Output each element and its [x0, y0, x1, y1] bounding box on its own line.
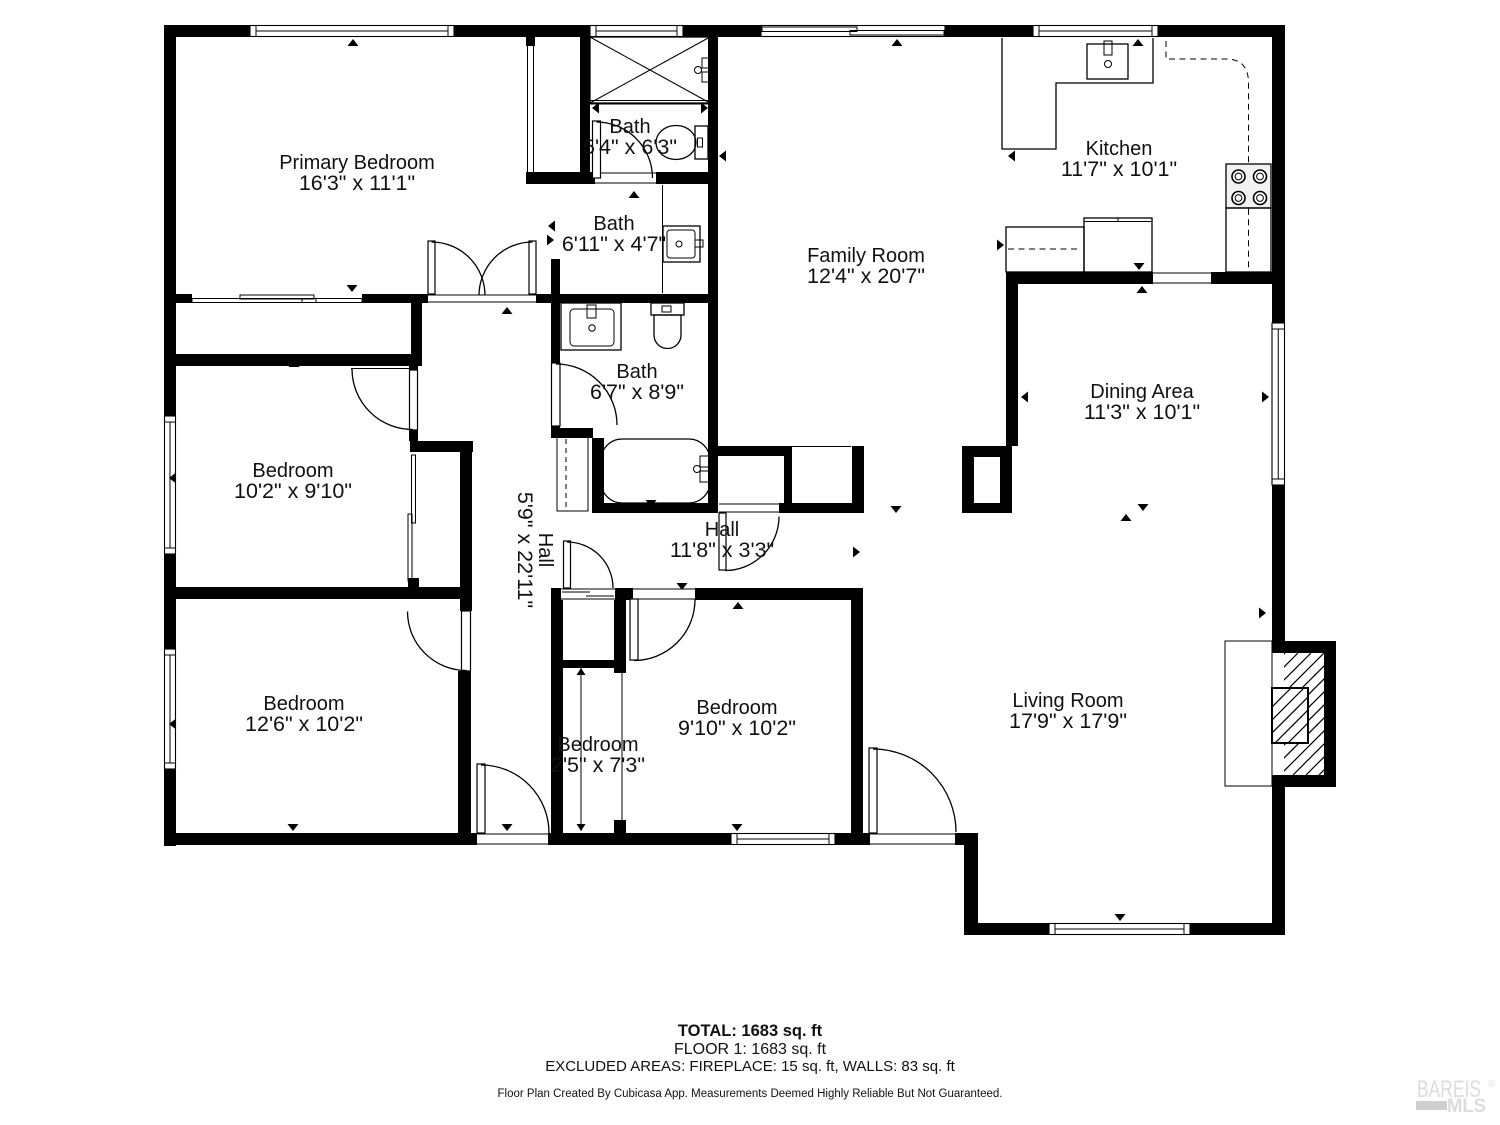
svg-text:TOTAL: 1683 sq. ft: TOTAL: 1683 sq. ft [678, 1022, 823, 1040]
svg-text:Primary Bedroom16'3" x 11'1": Primary Bedroom16'3" x 11'1" [279, 152, 435, 195]
svg-text:Living Room17'9" x 17'9": Living Room17'9" x 17'9" [1009, 690, 1127, 733]
svg-text:Dining Area11'3" x 10'1": Dining Area11'3" x 10'1" [1084, 381, 1200, 424]
svg-text:®: ® [1488, 1079, 1496, 1090]
svg-text:Bedroom2'5" x 7'3": Bedroom2'5" x 7'3" [551, 734, 645, 777]
svg-text:Family Room12'4" x 20'7": Family Room12'4" x 20'7" [807, 245, 925, 288]
svg-text:Floor Plan Created By Cubicasa: Floor Plan Created By Cubicasa App. Meas… [498, 1088, 1003, 1100]
svg-text:FLOOR 1: 1683 sq. ft: FLOOR 1: 1683 sq. ft [674, 1041, 827, 1058]
svg-text:EXCLUDED AREAS: FIREPLACE: 15: EXCLUDED AREAS: FIREPLACE: 15 sq. ft, WA… [545, 1058, 955, 1075]
svg-text:MLS: MLS [1447, 1096, 1486, 1117]
